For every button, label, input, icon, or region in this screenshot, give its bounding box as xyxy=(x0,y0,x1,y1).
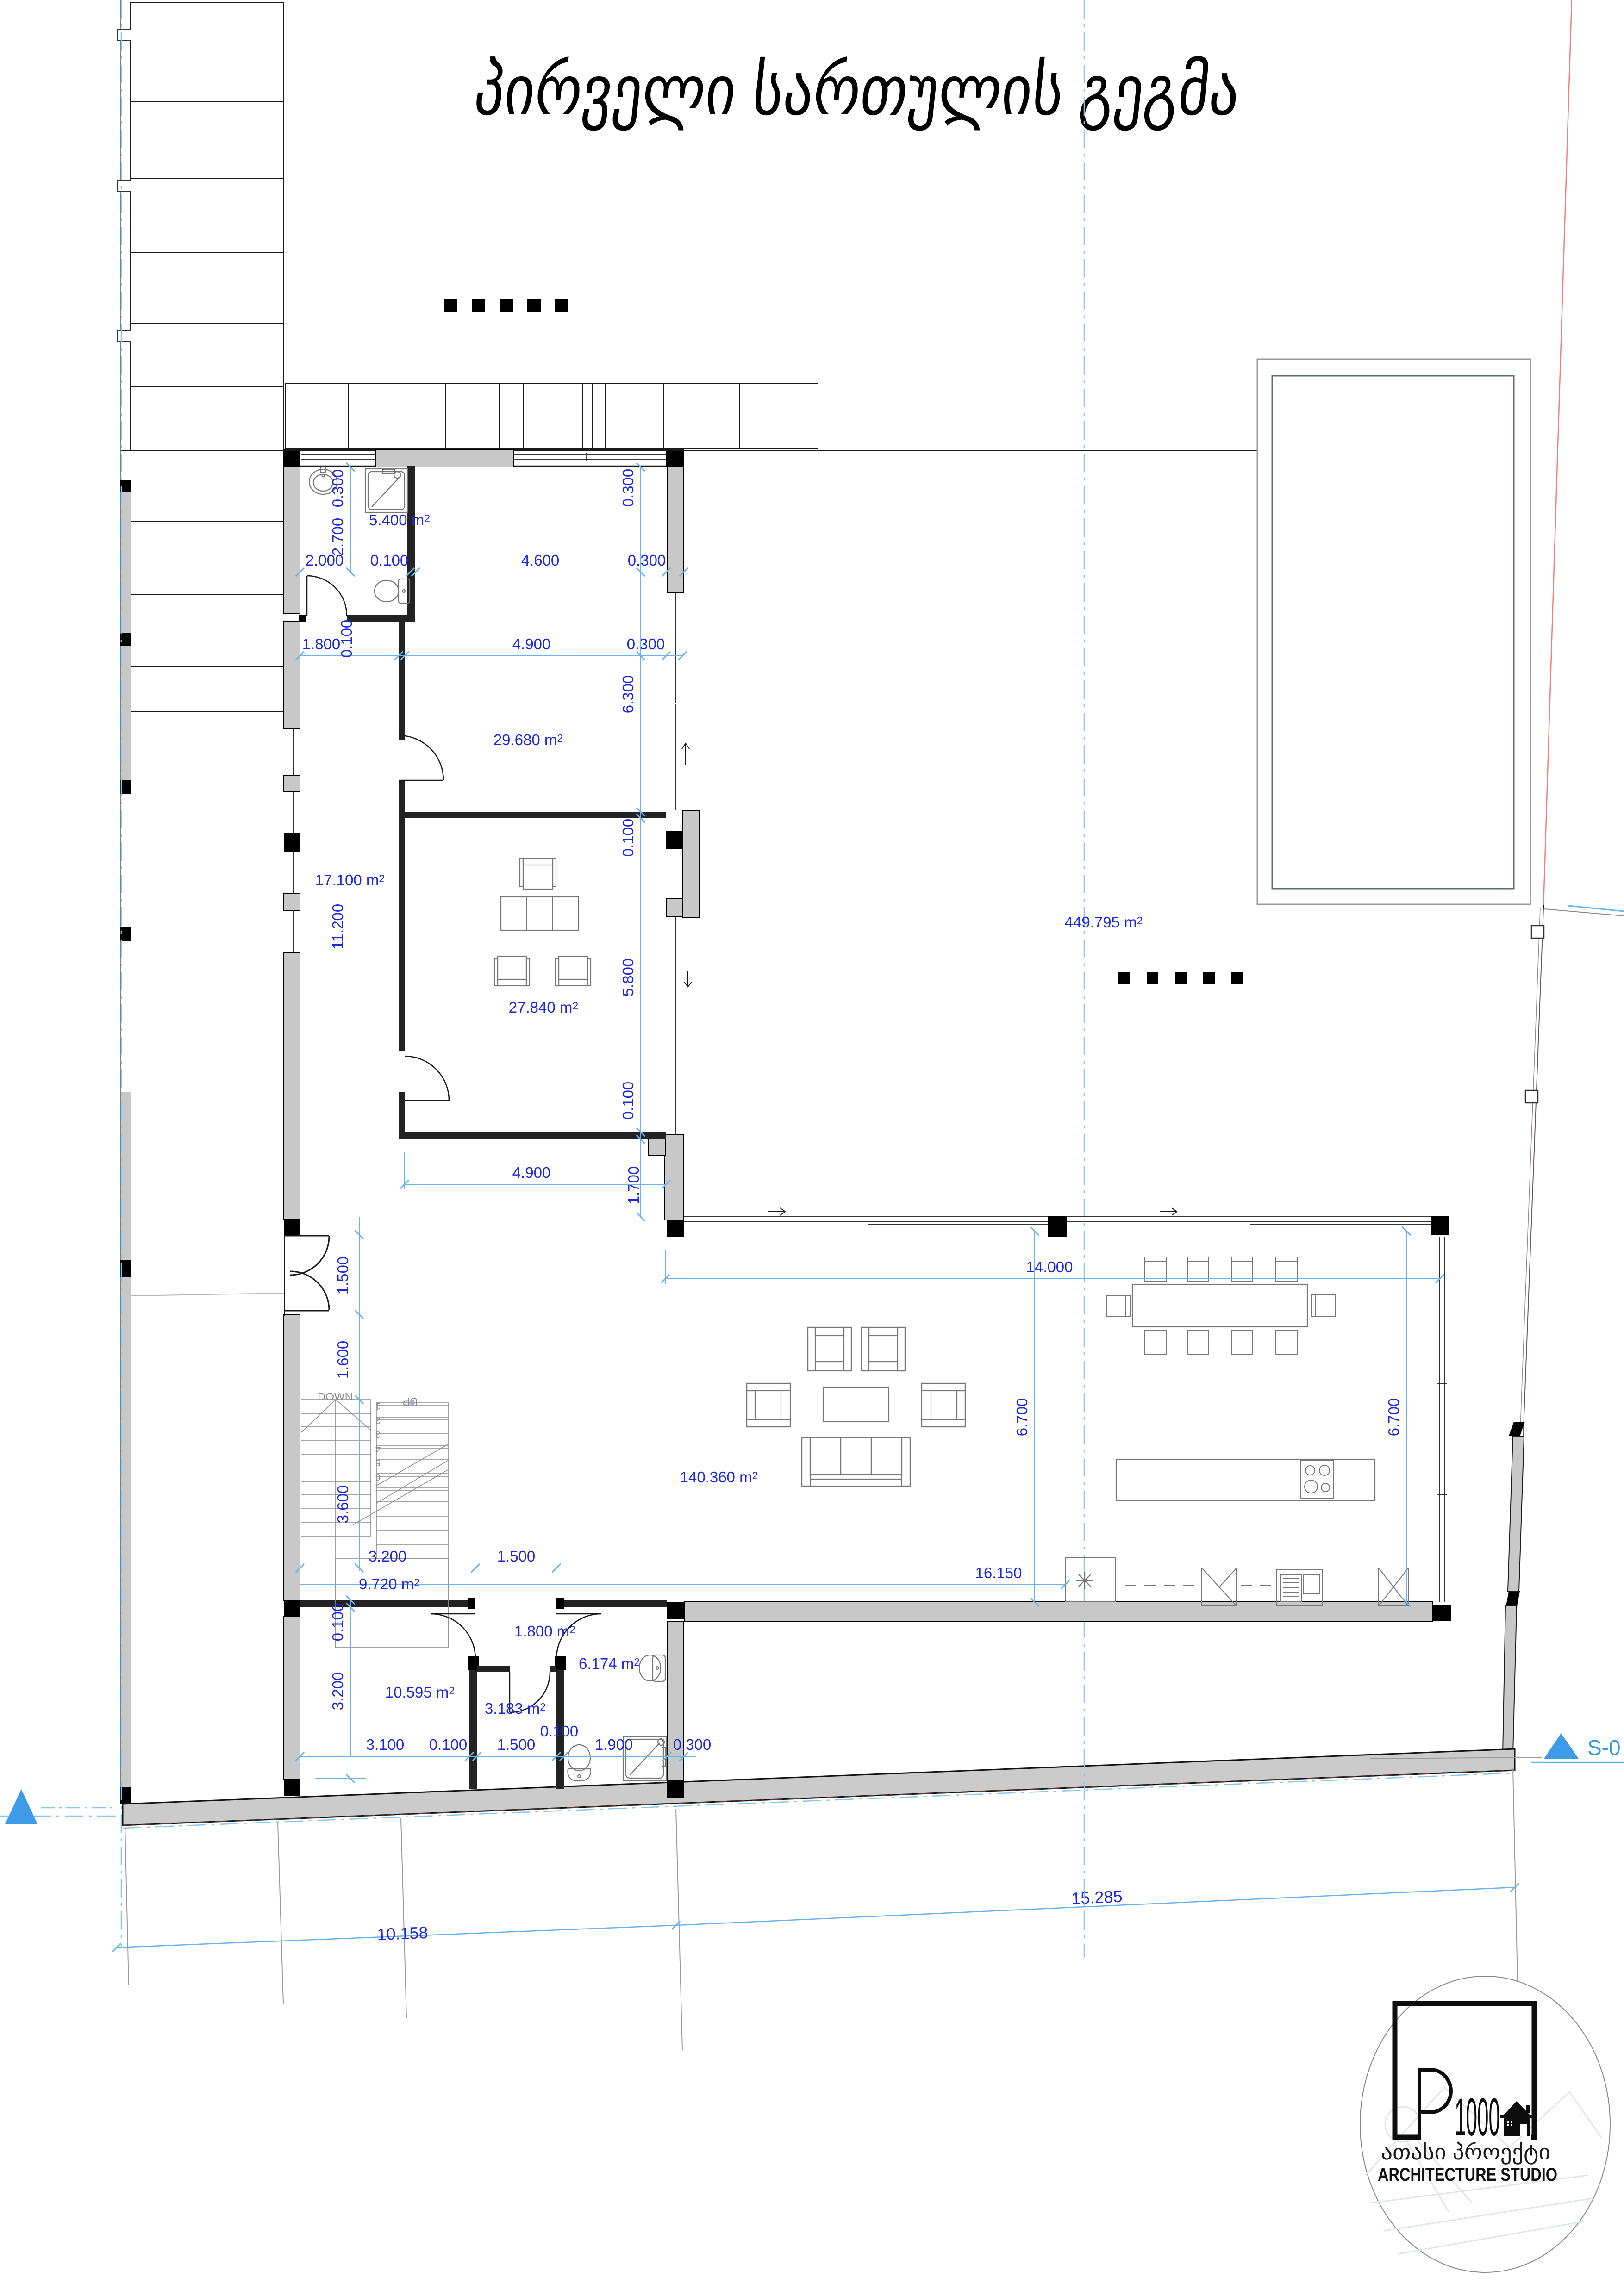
svg-text:3.600: 3.600 xyxy=(334,1485,351,1524)
svg-text:5.800: 5.800 xyxy=(619,958,637,997)
svg-text:0.100: 0.100 xyxy=(619,1082,637,1120)
svg-text:10.158: 10.158 xyxy=(377,1923,429,1944)
svg-text:29.680 m2: 29.680 m2 xyxy=(493,731,563,748)
svg-text:0.100: 0.100 xyxy=(619,819,637,857)
svg-text:DOWN: DOWN xyxy=(318,1391,353,1403)
svg-text:3.100: 3.100 xyxy=(366,1736,405,1753)
svg-text:S-0: S-0 xyxy=(1587,1736,1621,1760)
svg-text:0.300: 0.300 xyxy=(673,1736,712,1753)
svg-text:4.900: 4.900 xyxy=(512,1164,551,1181)
svg-text:9.720 m2: 9.720 m2 xyxy=(359,1575,420,1593)
svg-text:2: 2 xyxy=(375,1415,381,1425)
svg-text:14.000: 14.000 xyxy=(1026,1258,1073,1276)
svg-text:16.150: 16.150 xyxy=(975,1564,1022,1581)
svg-text:3.200: 3.200 xyxy=(329,1672,346,1711)
svg-text:1.800: 1.800 xyxy=(302,635,341,653)
svg-text:0.300: 0.300 xyxy=(619,469,637,507)
svg-text:0.100: 0.100 xyxy=(329,1603,346,1642)
svg-text:1.800 m2: 1.800 m2 xyxy=(514,1623,575,1640)
svg-text:3.200: 3.200 xyxy=(369,1548,407,1565)
svg-text:5.400 m2: 5.400 m2 xyxy=(369,511,430,529)
svg-text:1.700: 1.700 xyxy=(625,1166,642,1205)
svg-text:0.100: 0.100 xyxy=(338,620,355,658)
svg-text:140.360 m2: 140.360 m2 xyxy=(680,1468,758,1486)
svg-text:449.795 m2: 449.795 m2 xyxy=(1065,914,1143,931)
svg-text:4.900: 4.900 xyxy=(512,635,551,653)
svg-text:6.700: 6.700 xyxy=(1013,1398,1031,1437)
svg-text:2.700: 2.700 xyxy=(329,518,346,556)
svg-text:17.100 m2: 17.100 m2 xyxy=(315,871,385,889)
svg-text:ARCHITECTURE STUDIO: ARCHITECTURE STUDIO xyxy=(1378,2165,1557,2185)
svg-text:10.595 m2: 10.595 m2 xyxy=(385,1684,455,1701)
svg-text:1.600: 1.600 xyxy=(334,1341,351,1379)
svg-text:1000: 1000 xyxy=(1455,2088,1500,2147)
svg-text:1.500: 1.500 xyxy=(334,1257,351,1295)
svg-text:1.500: 1.500 xyxy=(497,1736,536,1753)
svg-text:1.500: 1.500 xyxy=(497,1548,536,1565)
svg-text:1.900: 1.900 xyxy=(595,1736,633,1753)
svg-text:15.285: 15.285 xyxy=(1071,1887,1123,1908)
svg-text:პირველი სართულის გეგმა: პირველი სართულის გეგმა xyxy=(470,51,1243,131)
svg-text:3: 3 xyxy=(375,1429,381,1439)
svg-text:6.300: 6.300 xyxy=(619,675,637,714)
svg-text:0.100: 0.100 xyxy=(540,1723,579,1740)
svg-text:0.300: 0.300 xyxy=(627,635,665,653)
svg-text:6.700: 6.700 xyxy=(1385,1398,1402,1437)
svg-text:5: 5 xyxy=(375,1457,381,1468)
svg-text:3.183 m2: 3.183 m2 xyxy=(485,1700,546,1717)
svg-text:4.600: 4.600 xyxy=(521,552,560,569)
svg-text:0.300: 0.300 xyxy=(329,469,346,508)
svg-text:ათასი პროექტი: ათასი პროექტი xyxy=(1381,2140,1550,2165)
svg-text:27.840 m2: 27.840 m2 xyxy=(509,999,578,1016)
svg-text:0.100: 0.100 xyxy=(370,552,409,569)
svg-text:0.300: 0.300 xyxy=(628,552,666,569)
svg-text:11.200: 11.200 xyxy=(329,904,346,949)
svg-text:1: 1 xyxy=(375,1401,381,1411)
svg-text:6: 6 xyxy=(375,1472,381,1482)
svg-text:6.174 m2: 6.174 m2 xyxy=(579,1655,640,1672)
svg-text:4: 4 xyxy=(375,1444,381,1454)
svg-text:0.100: 0.100 xyxy=(429,1736,468,1753)
